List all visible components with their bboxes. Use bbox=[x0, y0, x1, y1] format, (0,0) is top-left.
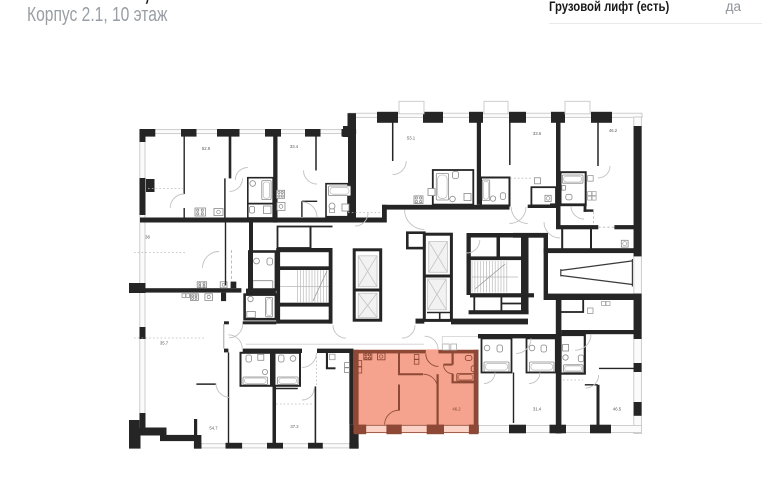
svg-text:54.7: 54.7 bbox=[209, 426, 218, 431]
svg-text:46.2: 46.2 bbox=[609, 128, 618, 133]
svg-text:38: 38 bbox=[145, 235, 150, 240]
svg-text:31.4: 31.4 bbox=[533, 407, 542, 412]
svg-text:33.6: 33.6 bbox=[533, 131, 542, 136]
svg-text:37.2: 37.2 bbox=[290, 424, 299, 429]
svg-text:33.4: 33.4 bbox=[290, 144, 299, 149]
svg-text:46.2: 46.2 bbox=[452, 407, 461, 412]
svg-text:52.9: 52.9 bbox=[202, 146, 211, 151]
svg-text:35.7: 35.7 bbox=[160, 341, 169, 346]
svg-text:53.1: 53.1 bbox=[407, 136, 416, 141]
svg-text:46.5: 46.5 bbox=[613, 407, 622, 412]
